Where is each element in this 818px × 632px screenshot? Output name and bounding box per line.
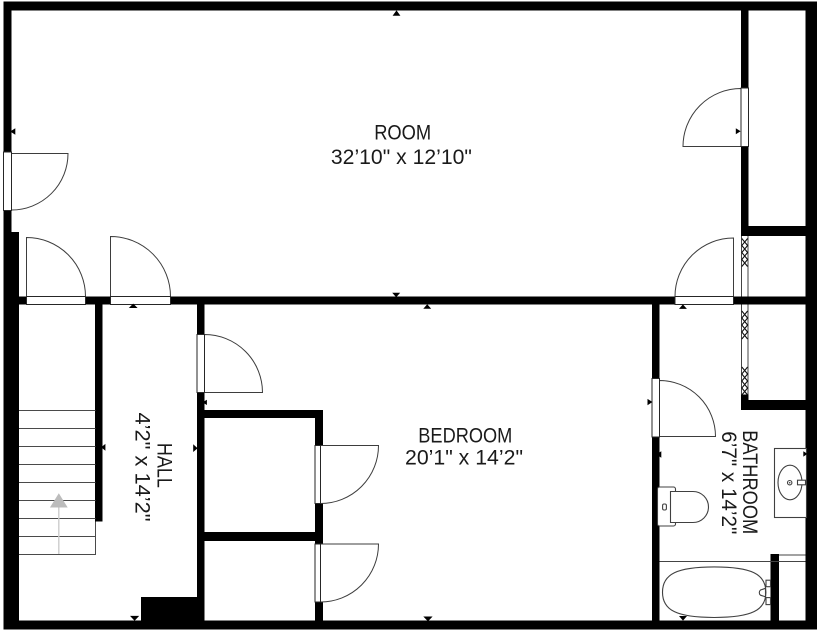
svg-text:20’1" x 14’2": 20’1" x 14’2" [405,447,523,470]
svg-text:ROOM: ROOM [374,122,431,145]
svg-text:32’10" x 12’10": 32’10" x 12’10" [331,146,472,169]
svg-text:BATHROOM: BATHROOM [738,430,761,534]
svg-text:4’2" x 14’2": 4’2" x 14’2" [130,413,153,522]
svg-text:BEDROOM: BEDROOM [418,425,512,448]
svg-text:6’7" x 14’2": 6’7" x 14’2" [717,431,740,534]
svg-text:HALL: HALL [152,443,175,488]
